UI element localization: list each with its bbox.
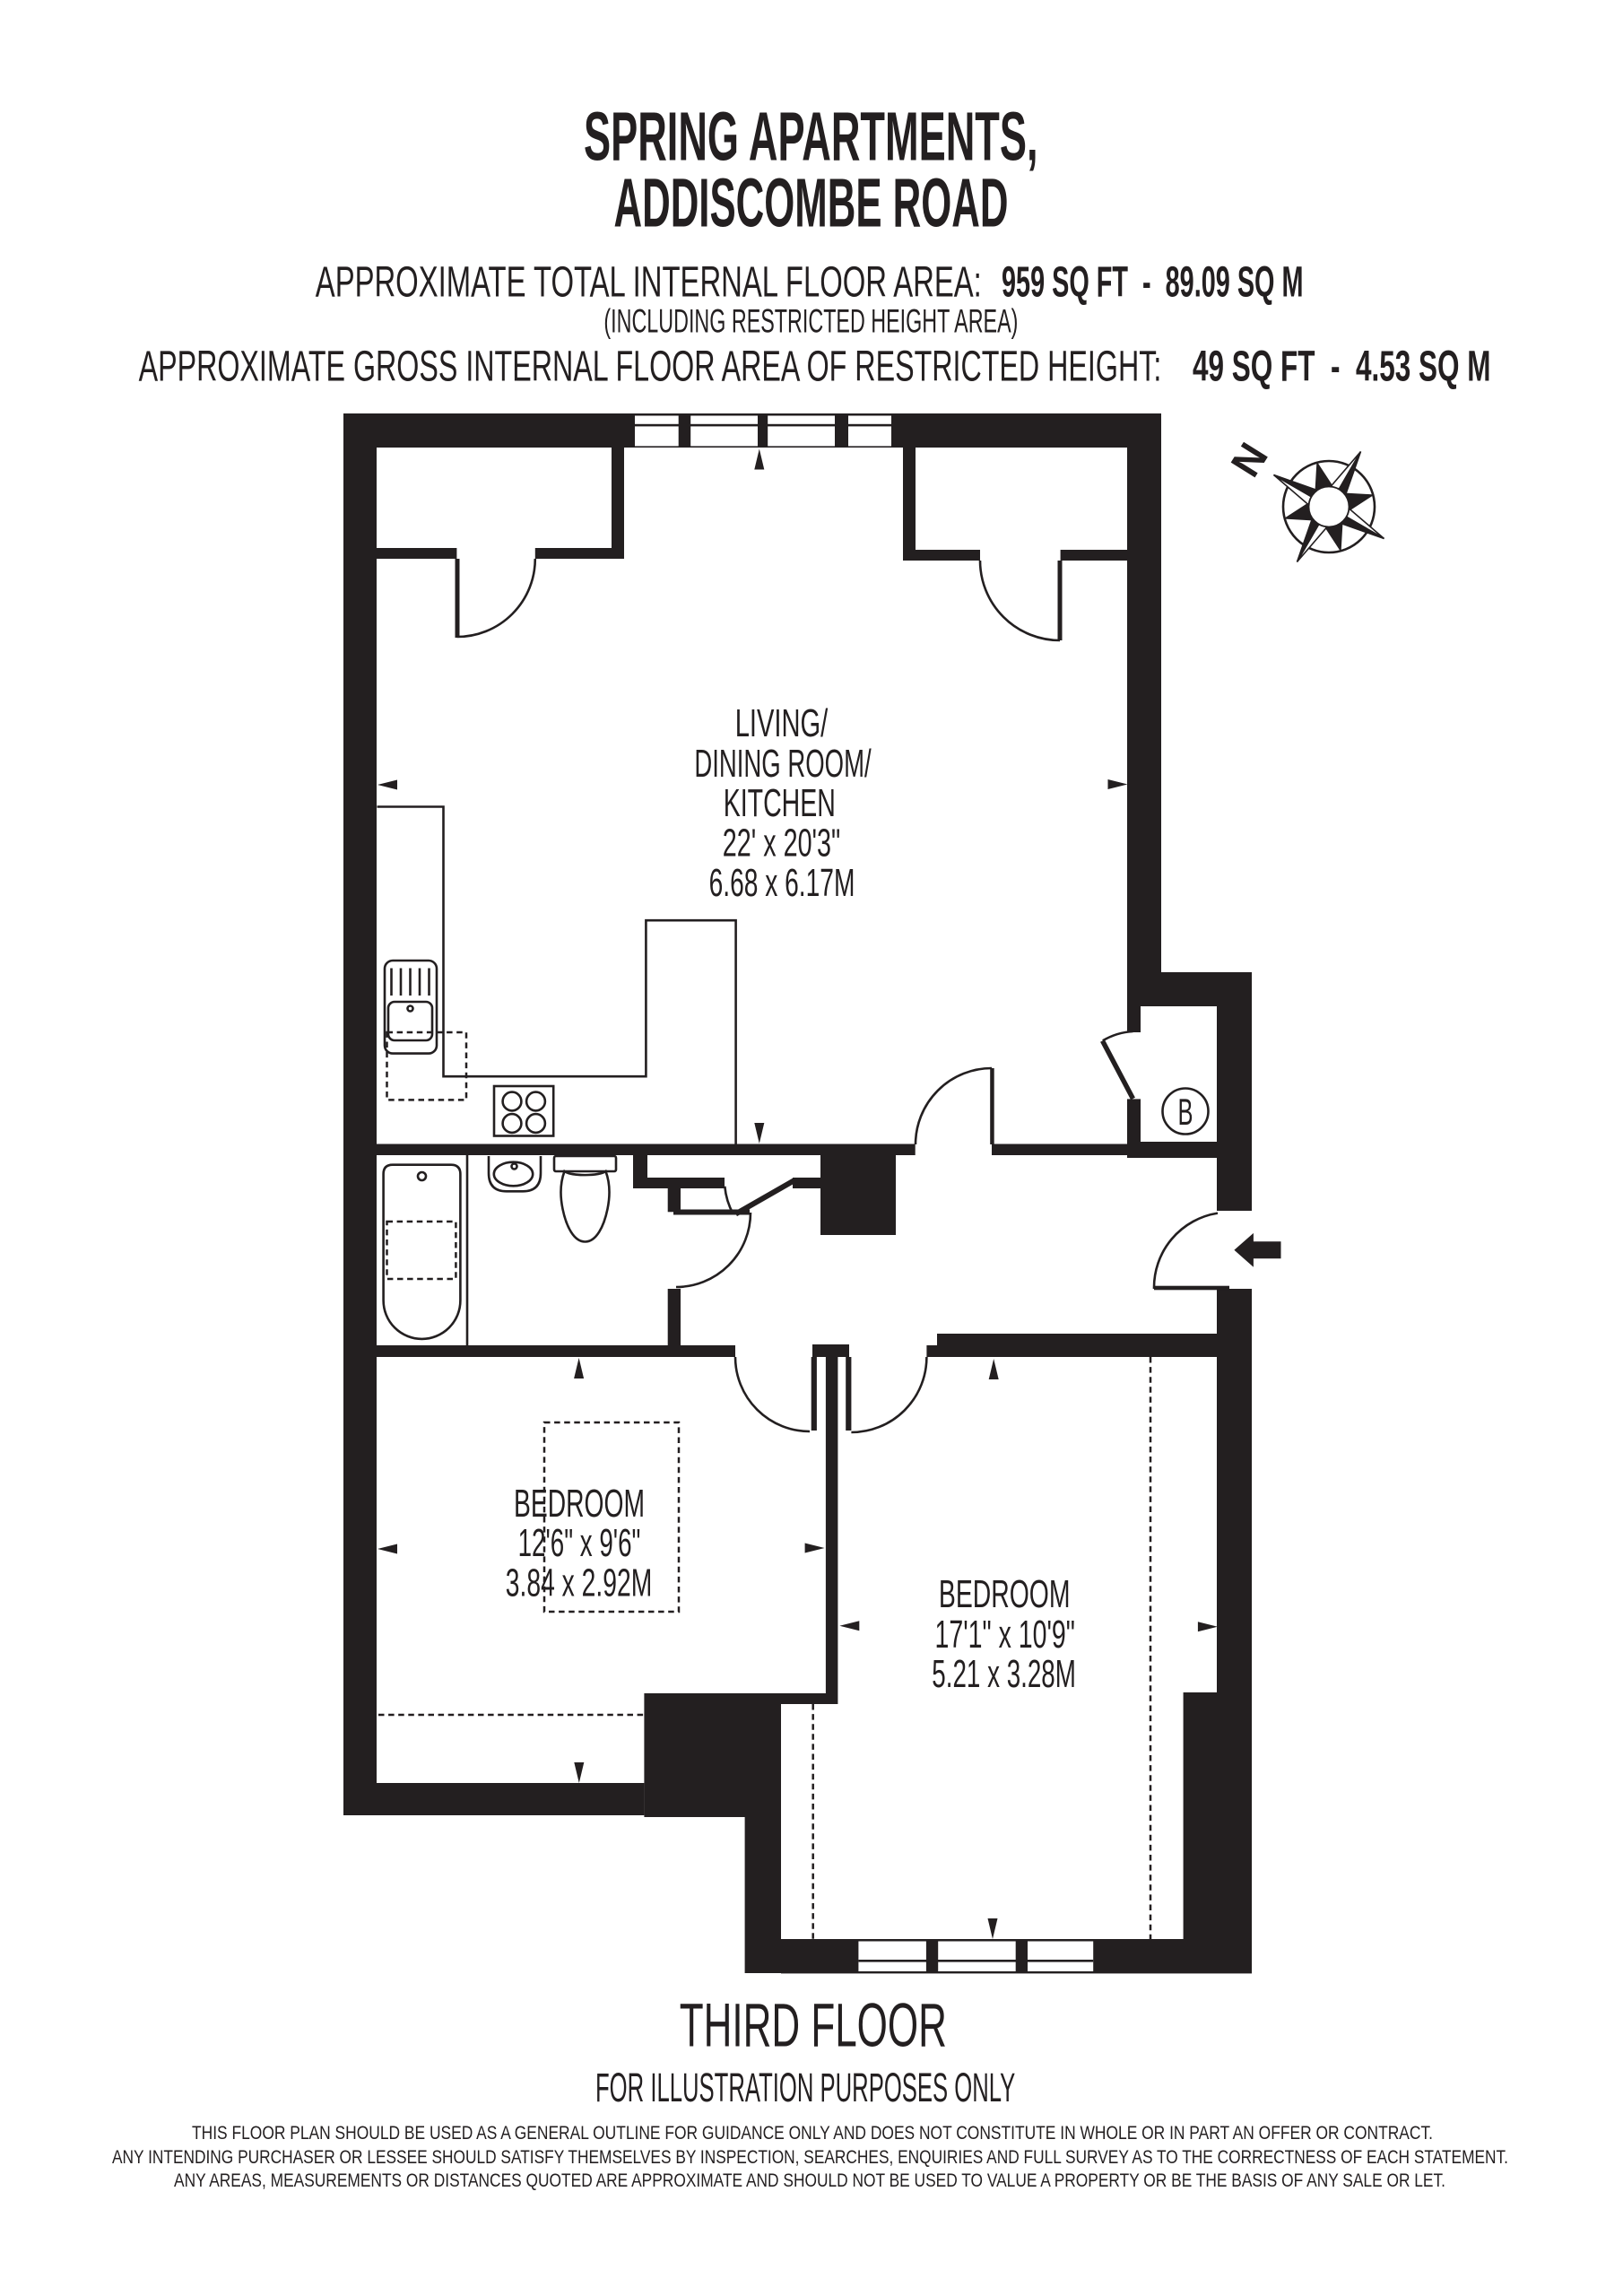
- svg-text:APPROXIMATE TOTAL INTERNAL FLO: APPROXIMATE TOTAL INTERNAL FLOOR AREA:: [316, 258, 982, 306]
- svg-text:6.68 x 6.17M: 6.68 x 6.17M: [709, 861, 855, 905]
- svg-text:ADDISCOMBE ROAD: ADDISCOMBE ROAD: [614, 165, 1009, 242]
- svg-text:ANY INTENDING PURCHASER OR LES: ANY INTENDING PURCHASER OR LESSEE SHOULD…: [112, 2146, 1508, 2168]
- svg-text:B: B: [1178, 1091, 1193, 1133]
- svg-text:DINING ROOM/: DINING ROOM/: [694, 742, 872, 786]
- svg-text:BEDROOM: BEDROOM: [514, 1482, 645, 1526]
- svg-text:APPROXIMATE GROSS INTERNAL FLO: APPROXIMATE GROSS INTERNAL FLOOR AREA OF…: [139, 344, 1162, 391]
- svg-text:KITCHEN: KITCHEN: [724, 781, 836, 825]
- svg-text:LIVING/: LIVING/: [735, 701, 829, 745]
- svg-text:17'1" x 10'9": 17'1" x 10'9": [935, 1613, 1075, 1657]
- svg-text:12'6" x 9'6": 12'6" x 9'6": [518, 1521, 641, 1565]
- svg-text:(INCLUDING RESTRICTED HEIGHT A: (INCLUDING RESTRICTED HEIGHT AREA): [603, 303, 1018, 340]
- svg-text:ANY AREAS, MEASUREMENTS OR DIS: ANY AREAS, MEASUREMENTS OR DISTANCES QUO…: [174, 2170, 1445, 2191]
- svg-text:5.21 x 3.28M: 5.21 x 3.28M: [932, 1652, 1076, 1696]
- svg-text:BEDROOM: BEDROOM: [939, 1572, 1071, 1616]
- svg-text:49 SQ FT - 4.53 SQ M: 49 SQ FT - 4.53 SQ M: [1193, 344, 1491, 391]
- svg-text:959 SQ FT - 89.09 SQ M: 959 SQ FT - 89.09 SQ M: [1002, 258, 1304, 306]
- svg-text:3.84 x 2.92M: 3.84 x 2.92M: [506, 1561, 653, 1605]
- svg-text:THIRD FLOOR: THIRD FLOOR: [680, 1990, 947, 2059]
- svg-text:FOR ILLUSTRATION PURPOSES ONLY: FOR ILLUSTRATION PURPOSES ONLY: [595, 2065, 1015, 2110]
- svg-text:THIS FLOOR PLAN SHOULD BE USED: THIS FLOOR PLAN SHOULD BE USED AS A GENE…: [192, 2122, 1433, 2144]
- svg-text:22' x 20'3": 22' x 20'3": [723, 822, 841, 865]
